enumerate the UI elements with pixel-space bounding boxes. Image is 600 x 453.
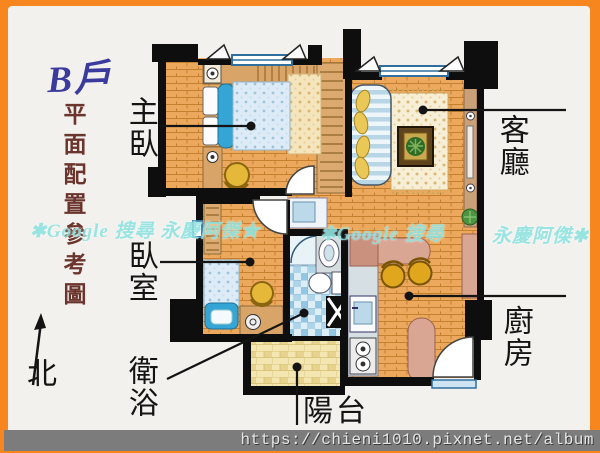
plan-title: 平面配置參考圖 [55, 102, 89, 312]
counter-peninsula [408, 318, 435, 382]
bed-pillow [218, 84, 234, 148]
label-bathroom: 衛浴 [124, 355, 156, 419]
label-master-bedroom: 主臥 [124, 96, 156, 160]
shower [288, 233, 316, 265]
chair [251, 282, 273, 304]
headboard [203, 87, 218, 115]
floor-plan-image: B戶 平面配置參考圖 主臥 客廳 臥室 衛浴 廚房 陽台 北 ✱Google 搜… [0, 0, 600, 453]
chair [225, 163, 249, 187]
unit-label: B戶 [46, 47, 114, 103]
watermark-right: 永慶阿傑✱ [492, 221, 589, 248]
balcony-threshold [432, 380, 476, 388]
stool [409, 262, 432, 285]
watermark-left: ✱Google 搜尋 永慶阿傑★ [30, 216, 260, 243]
watermark-middle: ✱Google 搜尋 [320, 219, 445, 246]
counter [462, 234, 479, 298]
album-url: https://chieni1010.pixnet.net/album [4, 430, 600, 451]
label-balcony: 陽台 [303, 396, 369, 428]
label-bedroom: 臥室 [124, 240, 156, 304]
footer-bar: https://chieni1010.pixnet.net/album [4, 430, 600, 451]
label-living-room: 客廳 [495, 114, 527, 178]
label-kitchen: 廚房 [499, 305, 531, 369]
stool [382, 265, 405, 288]
north-label: 北 [27, 349, 57, 393]
